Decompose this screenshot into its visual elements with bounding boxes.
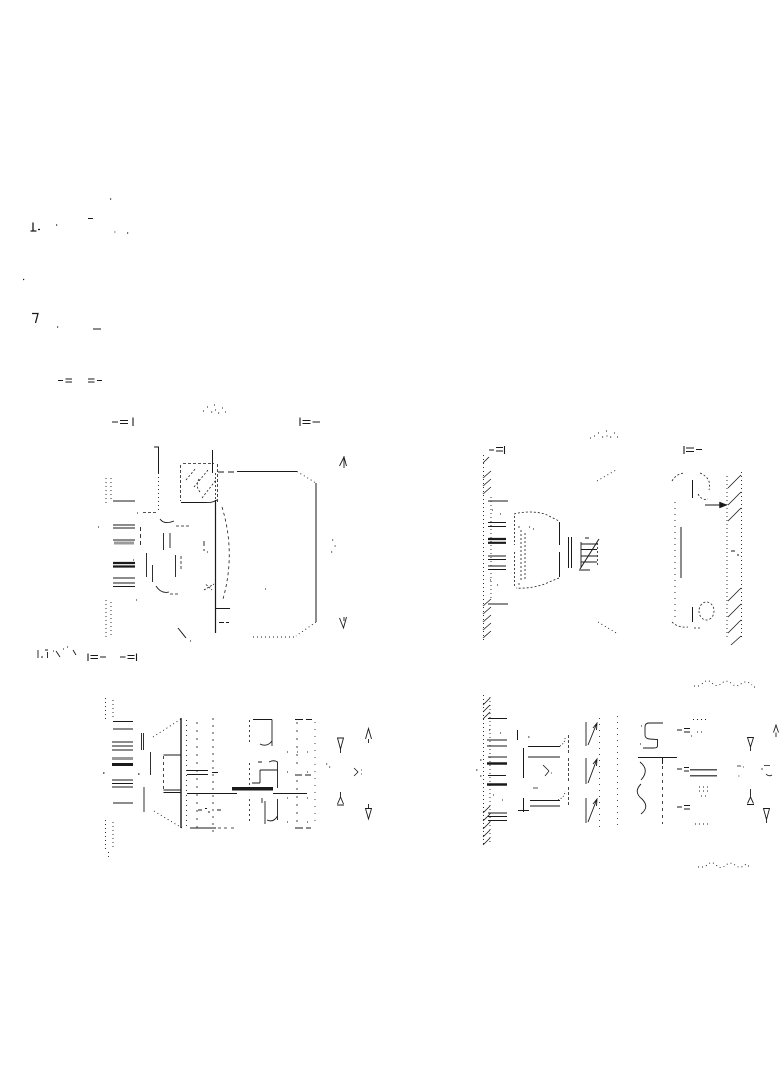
view-b-body <box>483 455 742 645</box>
drawing-canvas <box>0 0 784 1066</box>
view-d-body <box>476 681 779 868</box>
view-a-body <box>98 447 347 641</box>
view-b-markers <box>489 446 702 454</box>
view-b-label <box>590 431 618 438</box>
view-c-corner-text <box>38 647 76 658</box>
view-a-label <box>203 405 226 413</box>
view-c-markers <box>88 654 137 662</box>
view-c-body <box>103 698 372 858</box>
view-a-markers <box>112 418 320 427</box>
drawing-sheet <box>0 0 784 1066</box>
margin-marks <box>23 199 128 382</box>
